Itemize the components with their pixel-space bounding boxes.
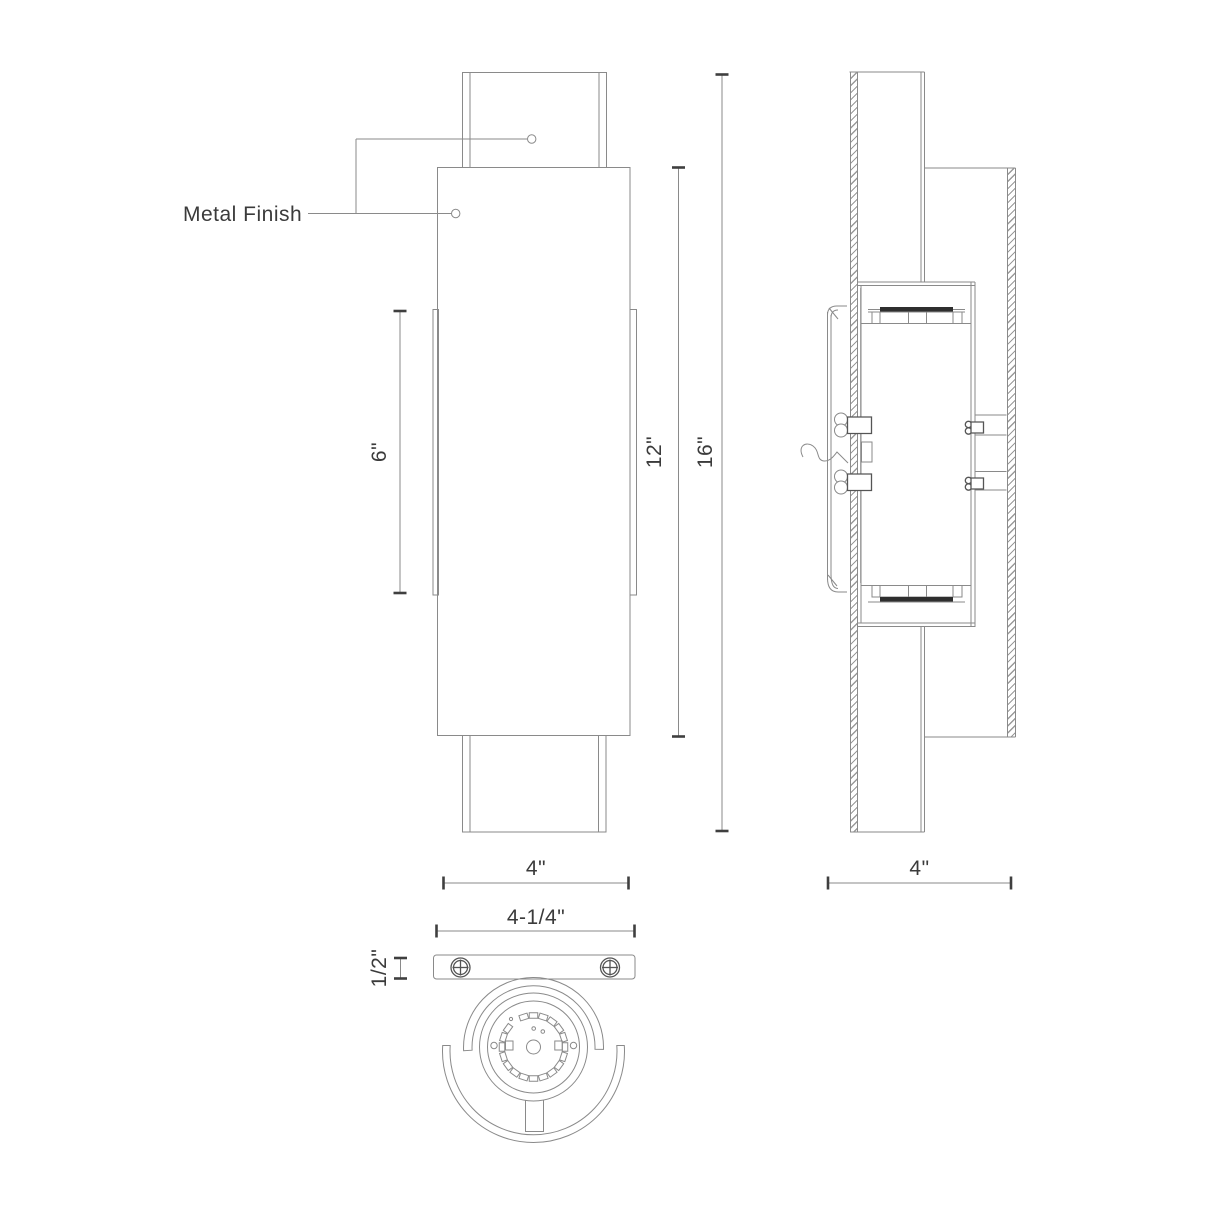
dimension-backplate-thickness: 1/2" [368,949,407,988]
led-ring [499,1013,568,1082]
side-pad-right [555,1041,563,1050]
stem [526,1101,544,1132]
side-pad-left [506,1041,514,1050]
dimension-label-6in: 6" [368,442,391,462]
led-ring-dot [509,1017,512,1020]
phillips-screw-left [451,958,470,977]
center-hole [527,1040,541,1054]
dimension-label-1-2in: 1/2" [368,949,391,988]
dimension-label-4-1-4in: 4-1/4" [507,906,565,929]
leader-dot-glass [528,135,536,143]
dimension-drawing: Metal Finish 6" 12" 16" 4" [0,0,1214,1214]
dimension-overall-height: 16" [694,75,729,832]
dimension-backplate-width: 4-1/4" [437,906,635,938]
mounting-bolt-top [835,413,872,437]
leader-dot-body [452,209,460,217]
side-lamp-cavity [857,282,975,627]
board-dot-1 [532,1027,536,1031]
dimension-depth: 4" [828,857,1011,890]
side-top-led-assembly [861,307,971,324]
wall-mounting-bracket [828,306,848,592]
board-dot-2 [541,1030,545,1034]
bottom-view [434,955,636,1143]
side-view [801,72,1015,832]
dimension-label-16in: 16" [694,436,717,468]
front-bottom-glass-tube [463,736,607,833]
led-board-bottom [880,597,953,602]
front-top-glass-tube [463,73,607,168]
metal-finish-leader [308,135,536,218]
led-board-top [880,307,953,312]
drawing-svg: Metal Finish 6" 12" 16" 4" [0,0,1214,1214]
dimension-front-width: 4" [444,857,629,890]
led-board-circle [488,1001,580,1093]
phillips-screw-right [601,958,620,977]
dimension-label-12in: 12" [643,436,666,468]
wire-squiggle [801,444,848,463]
front-view: Metal Finish [183,73,637,833]
side-hole-right [570,1042,576,1048]
dimension-body-height: 12" [643,168,685,737]
dimension-fin-height: 6" [368,311,407,593]
front-metal-body [438,168,631,736]
dimension-label-4in-front: 4" [526,857,546,880]
rod-connector-block [862,442,873,462]
dimension-label-4in-side: 4" [909,857,929,880]
metal-finish-label: Metal Finish [183,203,302,226]
glass-tube-circle [480,993,588,1101]
side-bottom-led-assembly [861,586,971,603]
lower-shade-ring [443,1046,625,1143]
mounting-bolt-bottom [835,470,872,494]
front-right-fin [630,310,637,596]
side-hole-left [491,1042,497,1048]
